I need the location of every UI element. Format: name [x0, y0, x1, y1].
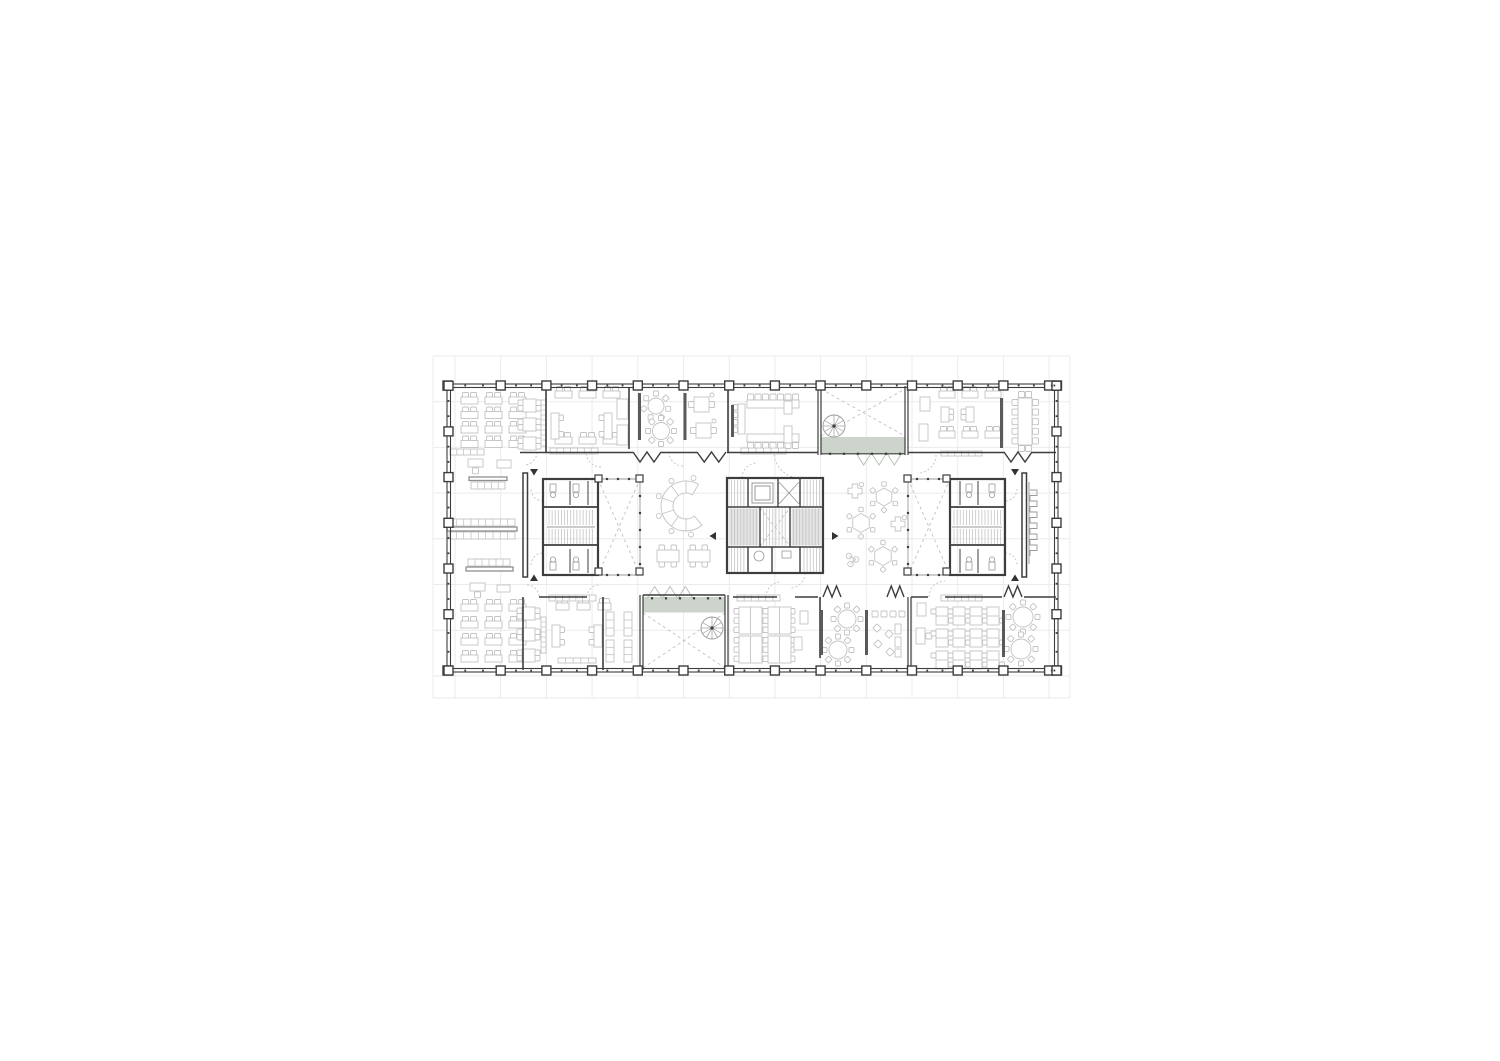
conference-table — [1012, 392, 1039, 452]
structural-column — [444, 473, 453, 482]
round-table — [1004, 632, 1038, 666]
door-swing-arc — [531, 553, 543, 565]
double-desk — [939, 427, 1001, 439]
small-table — [873, 624, 881, 632]
group-table-cluster — [734, 607, 795, 663]
door-swing-arc — [1005, 553, 1017, 565]
teacher-desk — [470, 583, 485, 598]
structural-column — [633, 666, 642, 675]
direction-arrow — [530, 469, 538, 476]
double-desk — [461, 393, 526, 448]
structural-column — [908, 381, 917, 390]
structural-column — [999, 381, 1008, 390]
door-swing-arc — [524, 452, 537, 465]
structural-column — [1052, 564, 1061, 573]
structural-column — [444, 564, 453, 573]
door-swing-arc — [774, 452, 800, 478]
round-table — [822, 634, 854, 666]
structural-column — [953, 666, 962, 675]
structural-column — [816, 381, 825, 390]
spiral-staircase — [701, 617, 723, 639]
structural-column — [1052, 381, 1061, 390]
side-table — [497, 585, 510, 592]
side-desk — [551, 413, 564, 439]
structural-column — [444, 518, 453, 527]
structural-column — [1052, 666, 1061, 675]
structural-column — [908, 666, 917, 675]
door-swing-arc — [918, 455, 936, 473]
structural-column — [444, 666, 453, 675]
side-table — [800, 611, 808, 624]
four-seat-table — [518, 399, 541, 450]
c-shaped-counter — [656, 475, 702, 537]
small-table — [885, 630, 893, 638]
side-table — [917, 603, 926, 616]
floor-plan-page — [0, 0, 1500, 1061]
door-swing-arc — [742, 463, 757, 478]
side-desk — [961, 407, 974, 422]
folding-partition — [887, 586, 904, 597]
shelf-rack — [541, 617, 546, 653]
structural-column — [496, 666, 505, 675]
teacher-desk — [468, 459, 483, 474]
side-table — [784, 426, 792, 443]
four-seat-table — [517, 607, 540, 662]
round-table — [646, 416, 677, 447]
four-seat-table — [657, 545, 679, 567]
structural-column — [770, 666, 779, 675]
paired-desks — [931, 607, 1005, 669]
cross-shaped-table — [848, 482, 864, 498]
round-table — [1006, 600, 1040, 634]
double-desk — [461, 600, 526, 663]
cross-shaped-table — [891, 515, 907, 531]
door-swing-arc — [1005, 489, 1017, 501]
double-desk — [939, 387, 1001, 399]
folding-partition — [823, 586, 841, 597]
structural-column — [679, 666, 688, 675]
side-table — [784, 401, 792, 414]
side-desk — [599, 413, 612, 439]
direction-arrow — [1011, 575, 1019, 582]
door-swing-arc — [669, 452, 683, 466]
structural-column — [999, 666, 1008, 675]
door-swing-arc — [531, 489, 543, 501]
side-desk — [589, 625, 602, 647]
structural-column — [679, 381, 688, 390]
side-desk — [552, 625, 565, 647]
folding-partition — [1004, 586, 1022, 597]
side-table — [895, 637, 901, 647]
side-table — [919, 424, 928, 441]
structural-column — [862, 381, 871, 390]
structural-column — [1052, 473, 1061, 482]
structural-column — [1052, 518, 1061, 527]
structural-column — [725, 666, 734, 675]
structural-column — [725, 381, 734, 390]
square-group-table — [691, 419, 717, 438]
structural-column — [542, 381, 551, 390]
round-table — [640, 391, 670, 421]
side-table — [895, 649, 901, 657]
structural-column — [953, 381, 962, 390]
structural-column — [444, 381, 453, 390]
four-seat-table — [688, 545, 710, 567]
folding-partition — [697, 452, 726, 462]
hexagonal-table — [870, 482, 899, 513]
structural-column — [496, 381, 505, 390]
hexagonal-table — [846, 507, 876, 539]
structural-column — [862, 666, 871, 675]
door-swing-arc — [527, 585, 539, 597]
structural-column — [542, 666, 551, 675]
side-desk — [941, 407, 954, 422]
structural-column — [633, 381, 642, 390]
structural-column — [1052, 427, 1061, 436]
structural-column — [588, 666, 597, 675]
small-table — [874, 640, 882, 648]
structural-column — [588, 381, 597, 390]
structural-column — [444, 427, 453, 436]
folding-partition — [1004, 452, 1032, 462]
scalloped-wall-panel — [1029, 482, 1037, 564]
side-table — [497, 460, 511, 468]
floor-plan-drawing — [0, 0, 1500, 1061]
square-group-table — [689, 393, 715, 412]
side-table — [895, 624, 901, 634]
side-table — [617, 425, 628, 445]
hexagonal-table — [868, 540, 898, 572]
side-table — [794, 637, 802, 650]
structural-column — [444, 610, 453, 619]
small-table — [872, 611, 905, 617]
structural-column — [816, 666, 825, 675]
direction-arrow — [1011, 469, 1019, 476]
structural-column — [1052, 610, 1061, 619]
small-table — [886, 648, 894, 656]
direction-arrow — [530, 575, 538, 582]
round-table — [831, 603, 863, 635]
folding-partition — [633, 452, 661, 462]
side-table — [617, 399, 628, 419]
door-swing-arc — [790, 573, 805, 588]
triple-stool-cluster — [846, 553, 859, 567]
spiral-staircase — [823, 415, 845, 437]
side-table — [920, 397, 930, 411]
structural-column — [770, 381, 779, 390]
